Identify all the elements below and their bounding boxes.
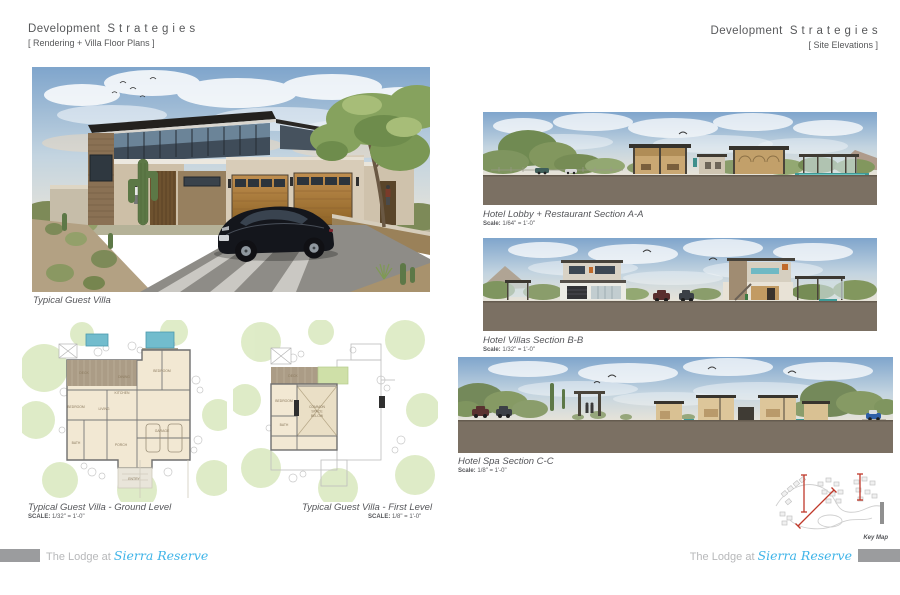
elevation-c-caption-block: Hotel Spa Section C-C Scale: 1/8" = 1'-0…: [458, 456, 554, 474]
right-page-header: Development S t r a t e g i e s [ Site E…: [711, 25, 878, 50]
footer-left-prefix: The Lodge at: [46, 551, 111, 563]
ground-level-plan: DECK DINING KITCHEN LIVING BEDROOM BEDRO…: [22, 320, 227, 502]
elevation-a-scale: Scale: 1/64" = 1'-0": [483, 221, 643, 227]
ground-edge: [458, 420, 893, 422]
right-page-title: Development S t r a t e g i e s: [711, 25, 878, 37]
elevation-c-scale: Scale: 1/8" = 1'-0": [458, 468, 554, 474]
svg-text:DECK: DECK: [288, 374, 298, 378]
key-map-panel: [768, 466, 888, 534]
footer-bar-right: [858, 549, 900, 562]
restaurant-pavilion: [729, 146, 789, 174]
left-cabana: [505, 280, 531, 300]
right-page-subtitle: [ Site Elevations ]: [711, 40, 878, 50]
first-level-plan-panel: DECK BEDROOM BATH COMMON SPACE BELOW: [233, 320, 438, 502]
key-map: [768, 466, 888, 534]
license-plate: [219, 235, 229, 241]
lobby-pavilion: [629, 144, 691, 174]
pool-canopy: [799, 154, 859, 174]
svg-text:BEDROOM: BEDROOM: [153, 369, 171, 373]
tower-window: [90, 155, 112, 181]
ground-edge: [483, 175, 877, 177]
svg-text:COMMON: COMMON: [309, 405, 325, 409]
svg-text:KITCHEN: KITCHEN: [115, 391, 130, 395]
right-villa: [723, 258, 795, 300]
site-roads: [776, 485, 880, 529]
villa-rendering-panel: [32, 67, 430, 292]
left-villa: [560, 260, 626, 300]
ground-edge: [483, 301, 877, 303]
taillight: [329, 229, 333, 232]
left-page-subtitle: [ Rendering + Villa Floor Plans ]: [28, 38, 195, 48]
elevation-a-caption-block: Hotel Lobby + Restaurant Section A-A Sca…: [483, 209, 643, 227]
svg-text:GARAGE: GARAGE: [155, 429, 170, 433]
svg-text:DECK: DECK: [79, 371, 89, 375]
entry-monument-wall: [50, 187, 88, 225]
ground-plan-caption-block: Typical Guest Villa - Ground Level SCALE…: [28, 502, 171, 520]
footer-right-prefix: The Lodge at: [690, 551, 755, 563]
svg-text:BATH: BATH: [280, 423, 289, 427]
key-map-scale-bar: [880, 502, 884, 524]
ground-plan-caption: Typical Guest Villa - Ground Level: [28, 502, 171, 513]
footer-right-brand: Sierra Reserve: [758, 548, 852, 563]
footer-bar-left: [0, 549, 40, 562]
elevation-c-panel: [458, 357, 893, 453]
elevation-b-panel: [483, 238, 877, 331]
elevation-c: [458, 357, 893, 453]
svg-text:BELOW: BELOW: [311, 414, 324, 418]
svg-text:BEDROOM: BEDROOM: [275, 399, 293, 403]
first-level-plan: DECK BEDROOM BATH COMMON SPACE BELOW: [233, 320, 438, 502]
left-page-title: Development S t r a t e g i e s: [28, 23, 195, 35]
elevation-b-caption: Hotel Villas Section B-B: [483, 335, 583, 346]
first-plan-caption: Typical Guest Villa - First Level: [302, 502, 432, 513]
elevation-a-caption: Hotel Lobby + Restaurant Section A-A: [483, 209, 643, 220]
pool-small: [86, 334, 108, 346]
svg-text:BEDROOM: BEDROOM: [67, 405, 85, 409]
ground-mass: [483, 302, 877, 331]
elevation-b-scale: Scale: 1/32" = 1'-0": [483, 347, 583, 353]
svg-text:PORCH: PORCH: [115, 443, 128, 447]
monument-cap: [50, 185, 88, 189]
svg-text:DINING: DINING: [118, 375, 130, 379]
svg-text:ENTRY: ENTRY: [128, 477, 140, 481]
elevation-a-panel: [483, 112, 877, 205]
footer-right: The Lodge at Sierra Reserve: [690, 548, 852, 563]
svg-text:LIVING: LIVING: [98, 407, 109, 411]
svg-text:BATH: BATH: [72, 441, 81, 445]
ground-mass: [458, 421, 893, 453]
elevation-b: [483, 238, 877, 331]
ground-plan-scale: SCALE: 1/32" = 1'-0": [28, 514, 171, 520]
lawn-terrace: [318, 367, 348, 384]
presentation-board: Development S t r a t e g i e s [ Render…: [0, 0, 900, 595]
person: [745, 294, 748, 300]
footer-left-brand: Sierra Reserve: [114, 548, 208, 563]
ground-level-plan-panel: DECK DINING KITCHEN LIVING BEDROOM BEDRO…: [22, 320, 227, 502]
wall-lamp: [228, 179, 231, 188]
stair-core: [294, 400, 299, 416]
first-plan-caption-block: Typical Guest Villa - First Level SCALE:…: [302, 502, 432, 520]
wall-lamp: [290, 177, 293, 186]
building-clusters: [780, 477, 877, 525]
clerestory-window: [184, 177, 220, 186]
villa-rendering: [32, 67, 430, 292]
rendering-caption: Typical Guest Villa: [33, 295, 111, 306]
wall-lamp: [356, 177, 359, 186]
dark-fixture: [379, 396, 385, 408]
elevation-b-caption-block: Hotel Villas Section B-B Scale: 1/32" = …: [483, 335, 583, 353]
svg-text:SPACE: SPACE: [311, 410, 323, 414]
left-page-header: Development S t r a t e g i e s [ Render…: [28, 23, 195, 48]
footer-left: The Lodge at Sierra Reserve: [46, 548, 208, 563]
elevation-c-caption: Hotel Spa Section C-C: [458, 456, 554, 467]
first-plan-scale: SCALE: 1/8" = 1'-0": [368, 514, 432, 520]
pool-large: [146, 332, 174, 348]
key-map-label: Key Map: [768, 535, 888, 541]
ground-mass: [483, 176, 877, 205]
elevation-a: [483, 112, 877, 205]
